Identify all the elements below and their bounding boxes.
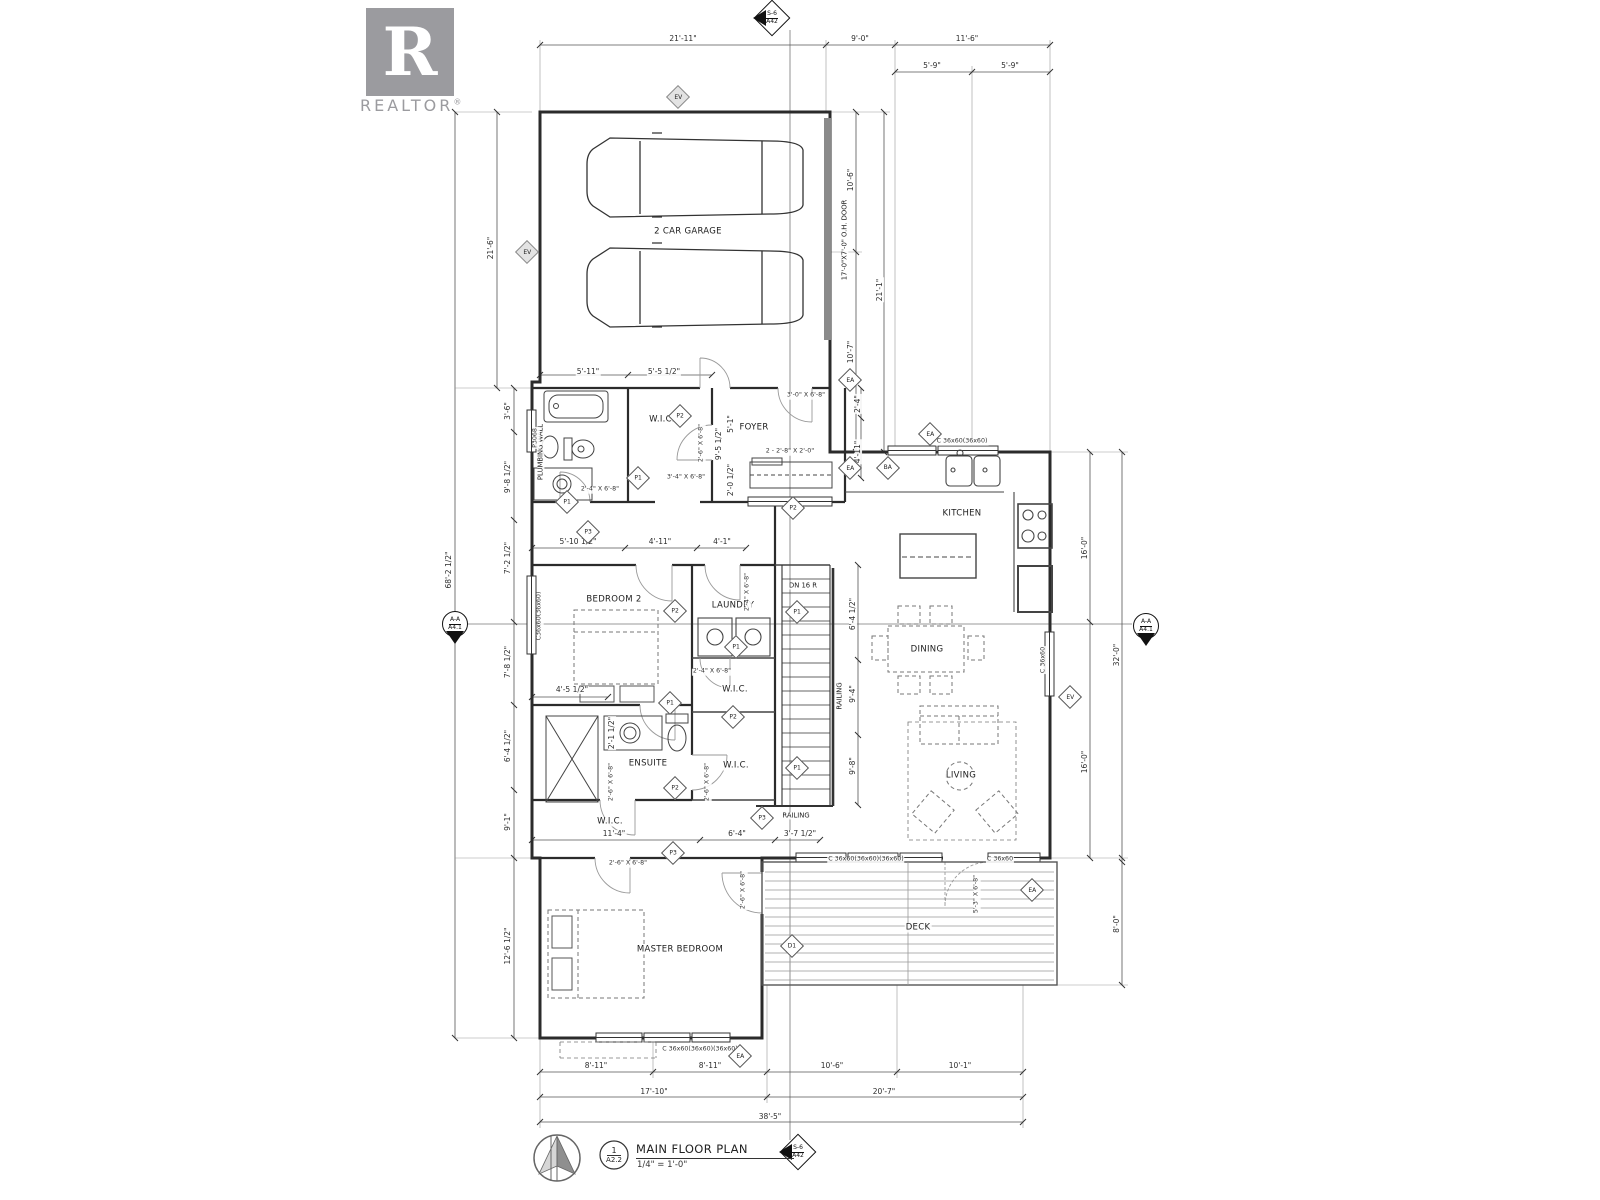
keynote-marker: P2 (781, 496, 805, 520)
opening-label: C 36x60(36x60)(36x60) (661, 1047, 738, 1054)
annotation-label: RAILING (836, 681, 843, 710)
detail-sheet: A2.2 (606, 1156, 622, 1164)
opening-label: 2'-4" X 6'-8" (745, 572, 752, 612)
keynote-marker: EA (1020, 878, 1044, 902)
dimension-label: 8'-11" (584, 1062, 609, 1070)
dimension-label: 5'-5 1/2" (647, 368, 681, 376)
keynote-marker: P2 (663, 599, 687, 623)
opening-label: 2'-4" X 6'-8" (692, 669, 732, 676)
room-label: W.I.C. (596, 818, 624, 827)
keynote-marker: P2 (663, 776, 687, 800)
dimension-label: 7'-8 1/2" (504, 645, 512, 679)
dimension-label: 5'-11" (576, 368, 601, 376)
keynote-marker: P3 (750, 806, 774, 830)
dimension-label: 68'-2 1/2" (445, 551, 453, 590)
opening-label: 2 - 2'-8" X 2'-0" (765, 449, 815, 456)
opening-label: 2'-6" X 6'-8" (609, 762, 616, 802)
dimension-label: 38'-5" (758, 1113, 783, 1121)
dimension-label: 6'-4" (727, 830, 747, 838)
room-label: W.I.C. (721, 686, 749, 695)
dimension-label: 7'-2 1/2" (504, 541, 512, 575)
keynote-marker: EA (838, 368, 862, 392)
dimension-label: 3'-7 1/2" (783, 830, 817, 838)
dimension-label: 6'-4 1/2" (849, 597, 857, 631)
opening-label: 2'-6" X 6'-8" (699, 423, 706, 463)
dimension-label: 12'-6 1/2" (504, 927, 512, 966)
opening-label: 3'-4" X 6'-8" (666, 475, 706, 482)
dimension-label: 11'-6" (955, 35, 980, 43)
opening-label: 2'-6" X 6'-8" (608, 861, 648, 868)
dimension-label: 4'-1" (712, 538, 732, 546)
dimension-label: 5'-9" (1000, 62, 1020, 70)
opening-label: 2'-6" X 6'-8" (705, 762, 712, 802)
opening-label: C 36x60(36x60) (936, 439, 989, 446)
dimension-label: 9'-0" (850, 35, 870, 43)
dimension-label: 11'-4" (602, 830, 627, 838)
opening-label: C 36x60 (1041, 646, 1048, 674)
room-label: FOYER (738, 424, 769, 433)
dimension-label: 6'-4 1/2" (504, 729, 512, 763)
room-label: BEDROOM 2 (585, 596, 642, 605)
room-label: DECK (905, 924, 932, 933)
section-marker: S-6A42 (759, 5, 785, 31)
keynote-marker: P1 (785, 600, 809, 624)
dimension-label: 2'-0 1/2" (727, 463, 735, 497)
keynote-marker: EV (515, 240, 539, 264)
dimension-label: 32'-0" (1113, 643, 1121, 668)
room-label: DINING (910, 646, 945, 655)
section-arrow-icon (753, 10, 766, 26)
room-label: ENSUITE (628, 760, 669, 769)
dimension-label: 21'-1" (876, 278, 884, 303)
dimension-label: 5'-9" (922, 62, 942, 70)
room-label: 2 CAR GARAGE (653, 228, 723, 237)
dimension-label: 9'-1" (504, 812, 512, 832)
plan-labels: 2 CAR GARAGEFOYERW.I.C.KITCHENDININGLIVI… (0, 0, 1600, 1200)
opening-label: 2'-4" X 6'-8" (580, 487, 620, 494)
dimension-label: 5'-1" (727, 414, 735, 434)
opening-label: C 36x60 (986, 857, 1014, 864)
dimension-label: 4'-5 1/2" (555, 686, 589, 694)
opening-label: C 36x60(36x60)(36x60) (827, 857, 904, 864)
dimension-label: 21'-11" (668, 35, 697, 43)
annotation-label: 17'-0"X7'-0" O.H. DOOR (841, 199, 848, 282)
dimension-label: 9'-8 1/2" (504, 460, 512, 494)
keynote-marker: D1 (780, 934, 804, 958)
keynote-marker: P1 (658, 691, 682, 715)
annotation-label: RAILING (781, 812, 810, 819)
opening-label: P3068 (533, 427, 540, 449)
room-label: MASTER BEDROOM (636, 946, 724, 955)
dimension-label: 3'-6" (504, 401, 512, 421)
dimension-label: 2'-1 1/2" (608, 716, 616, 750)
floor-plan-sheet: R REALTOR® (0, 0, 1600, 1200)
dimension-label: 16'-0" (1081, 536, 1089, 561)
keynote-marker: BA (876, 456, 900, 480)
section-marker: A-AA4.1 (442, 611, 468, 637)
dimension-label: 9'-8" (849, 756, 857, 776)
section-arrow-icon (446, 631, 464, 644)
opening-label: 5'-3" X 6'-8" (974, 874, 981, 914)
dimension-label: 17'-10" (639, 1088, 668, 1096)
keynote-marker: P1 (724, 635, 748, 659)
dimension-label: 20'-7" (872, 1088, 897, 1096)
drawing-title: MAIN FLOOR PLAN (636, 1142, 794, 1159)
dimension-label: 10'-6" (847, 168, 855, 193)
section-marker: A-AA4.1 (1133, 613, 1159, 639)
detail-number-badge: 1 A2.2 (600, 1141, 628, 1169)
keynote-marker: EV (1058, 685, 1082, 709)
keynote-marker: EV (666, 85, 690, 109)
dimension-label: 10'-1" (948, 1062, 973, 1070)
keynote-marker: P1 (626, 466, 650, 490)
dimension-label: 9'-5 1/2" (715, 427, 723, 461)
dimension-label: 9'-4" (849, 684, 857, 704)
keynote-marker: P1 (555, 490, 579, 514)
room-label: W.I.C. (722, 762, 750, 771)
room-label: KITCHEN (942, 510, 983, 519)
dimension-label: 2'-4" (854, 394, 862, 414)
dimension-label: 16'-0" (1081, 750, 1089, 775)
dimension-label: 10'-7" (847, 340, 855, 365)
dimension-label: 21'-6" (487, 236, 495, 261)
opening-label: 3'-0" X 6'-8" (786, 393, 826, 400)
dimension-label: 8'-11" (698, 1062, 723, 1070)
annotation-label: DN 16 R (788, 582, 818, 589)
dimension-label: 10'-6" (820, 1062, 845, 1070)
detail-number: 1 (607, 1146, 620, 1156)
room-label: LIVING (945, 772, 977, 781)
dimension-label: 8'-0" (1113, 914, 1121, 934)
keynote-marker: P3 (661, 841, 685, 865)
drawing-scale: 1/4" = 1'-0" (637, 1160, 687, 1170)
keynote-marker: P1 (785, 756, 809, 780)
opening-label: C36x60(36x60) (537, 591, 544, 642)
dimension-label: 4'-11" (648, 538, 673, 546)
section-arrow-icon (1137, 633, 1155, 646)
opening-label: 2'-6" X 6'-8" (741, 870, 748, 910)
keynote-marker: P2 (721, 705, 745, 729)
